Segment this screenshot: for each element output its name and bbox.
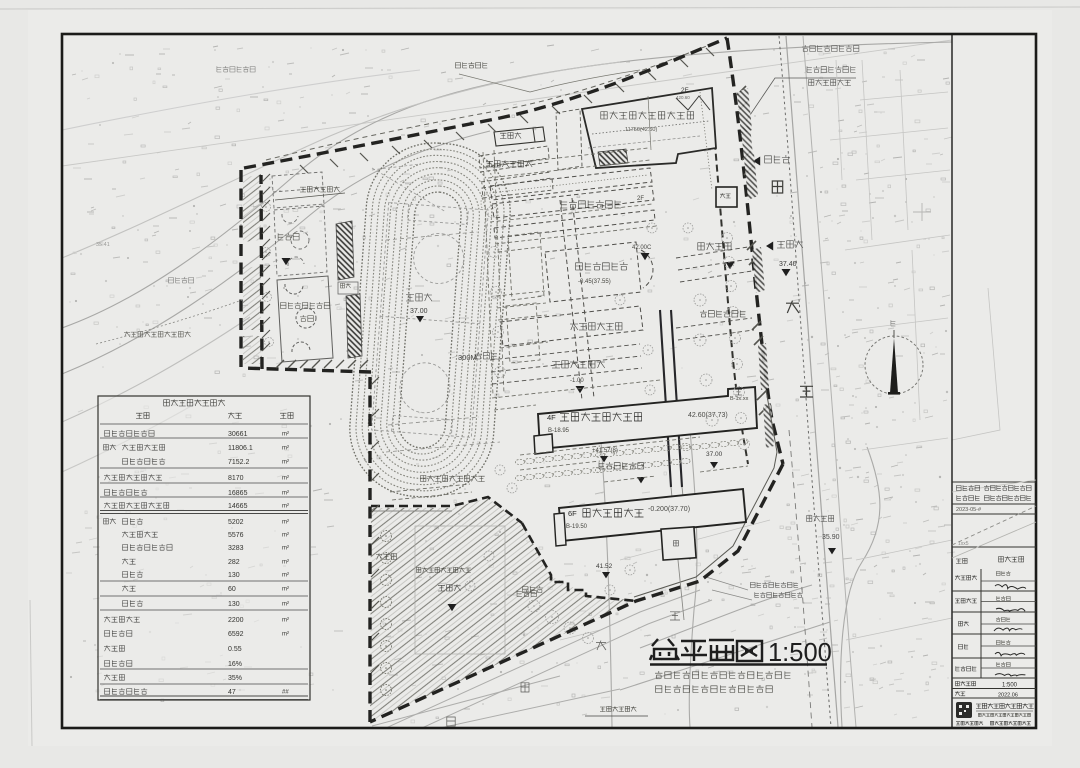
svg-text:B-1x.xx: B-1x.xx: [730, 396, 749, 402]
svg-text:##: ##: [282, 690, 289, 696]
svg-text:2F: 2F: [681, 87, 689, 94]
svg-text:1xx5: 1xx5: [958, 541, 969, 547]
svg-text:m²: m²: [282, 504, 289, 510]
svg-text:8170: 8170: [228, 475, 244, 482]
svg-text:m²: m²: [282, 533, 289, 539]
svg-text:41.52: 41.52: [596, 563, 613, 570]
svg-text:m²: m²: [282, 491, 289, 497]
svg-text:-0.45(37.55): -0.45(37.55): [578, 279, 611, 285]
svg-text:11806.1: 11806.1: [228, 445, 253, 452]
svg-text:14665: 14665: [228, 503, 248, 510]
svg-text:0.55: 0.55: [228, 646, 242, 653]
svg-text:m²: m²: [282, 587, 289, 593]
svg-text:2200: 2200: [228, 617, 244, 624]
svg-text:7152.2: 7152.2: [228, 459, 250, 466]
svg-text:+41.57(8): +41.57(8): [592, 448, 618, 454]
svg-text:30661: 30661: [228, 431, 248, 438]
svg-text:m²: m²: [282, 460, 289, 466]
svg-text:m²: m²: [282, 618, 289, 624]
svg-text:2023-05-#: 2023-05-#: [956, 507, 982, 513]
svg-text:m²: m²: [282, 520, 289, 526]
svg-text:1:500: 1:500: [768, 639, 832, 667]
svg-text:m²: m²: [282, 573, 289, 579]
svg-text:m²: m²: [282, 476, 289, 482]
svg-text:16%: 16%: [228, 661, 242, 668]
svg-text:6F: 6F: [568, 509, 577, 518]
svg-text:-0.200(37.70): -0.200(37.70): [648, 506, 690, 513]
svg-text:2022.06: 2022.06: [998, 693, 1018, 699]
svg-text:m²: m²: [282, 632, 289, 638]
svg-text:-1.00: -1.00: [570, 378, 584, 384]
svg-text:130: 130: [228, 572, 240, 579]
svg-text:B-19.50: B-19.50: [566, 524, 588, 530]
svg-text:300M: 300M: [458, 353, 477, 362]
svg-text:m²: m²: [282, 560, 289, 566]
svg-text:60: 60: [228, 586, 236, 593]
svg-text:130: 130: [228, 601, 240, 608]
svg-text:m²: m²: [282, 602, 289, 608]
svg-text:1:500: 1:500: [1002, 683, 1018, 689]
svg-text:37.00: 37.00: [706, 451, 723, 458]
svg-text:420.60: 420.60: [676, 95, 690, 100]
svg-text:16865: 16865: [228, 490, 248, 497]
svg-text:42.00C: 42.00C: [632, 245, 652, 251]
svg-text:m²: m²: [282, 432, 289, 438]
svg-text:6592: 6592: [228, 631, 244, 638]
svg-text:5576: 5576: [228, 532, 244, 539]
svg-text:4F: 4F: [547, 413, 556, 422]
svg-text:3283: 3283: [228, 545, 244, 552]
svg-text:2F: 2F: [637, 196, 644, 202]
svg-text:37.40: 37.40: [779, 261, 797, 268]
svg-text:35%: 35%: [228, 675, 242, 682]
svg-text:35.41: 35.41: [96, 242, 110, 248]
svg-text:47: 47: [228, 689, 236, 696]
svg-text:m²: m²: [282, 446, 289, 452]
svg-text:m²: m²: [282, 546, 289, 552]
svg-text:11750(42.50): 11750(42.50): [625, 127, 657, 133]
svg-text:5202: 5202: [228, 519, 244, 526]
svg-text:35.90: 35.90: [822, 534, 840, 541]
svg-text:282: 282: [228, 559, 240, 566]
svg-text:B-18.95: B-18.95: [548, 428, 570, 434]
svg-text:37.00: 37.00: [410, 308, 428, 315]
